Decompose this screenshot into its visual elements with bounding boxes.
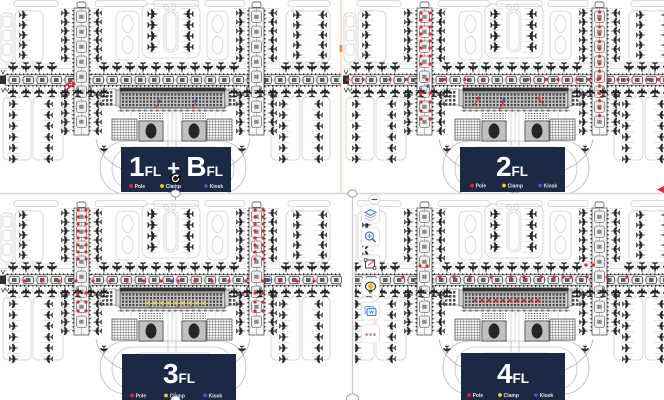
svg-text:Kiosk: Kiosk — [210, 184, 224, 190]
svg-text:Pole: Pole — [135, 184, 146, 190]
svg-text:Pole: Pole — [136, 393, 147, 399]
svg-text:Kiosk: Kiosk — [540, 393, 554, 399]
svg-text:Clamp: Clamp — [166, 184, 181, 190]
svg-text:Pole: Pole — [473, 393, 484, 399]
svg-text:Kiosk: Kiosk — [544, 183, 558, 189]
svg-text:Clamp: Clamp — [508, 183, 523, 189]
svg-text:w: w — [368, 310, 374, 316]
svg-text:Clamp: Clamp — [504, 393, 519, 399]
svg-text:Pole: Pole — [476, 183, 487, 189]
svg-text:Kiosk: Kiosk — [209, 393, 223, 399]
